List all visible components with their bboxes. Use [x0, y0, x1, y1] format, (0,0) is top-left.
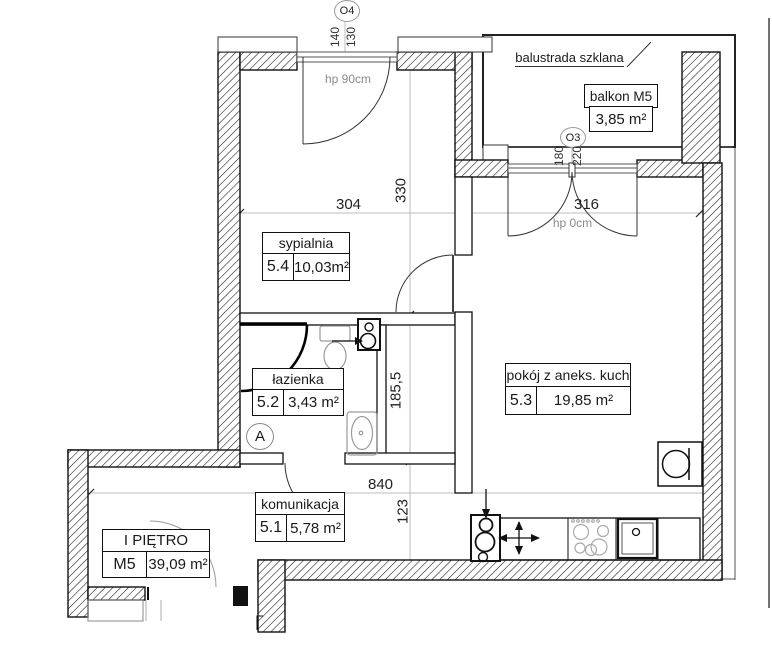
room-area: 10,03m² — [294, 254, 349, 280]
balcony-area-box: 3,85 m² — [589, 106, 653, 132]
dim-123: 123 — [396, 482, 411, 542]
room-number: 5.3 — [506, 387, 537, 414]
o3-sill-height: hp 0cm — [545, 216, 600, 229]
kitchen-sink — [618, 519, 657, 558]
washbasin — [347, 412, 377, 455]
room-label-sypialnia: sypialnia 5.4 10,03m² — [262, 232, 350, 281]
room-name: pokój z aneks. kuch — [506, 364, 630, 387]
o3-width-dim: 180 — [552, 136, 566, 176]
unit-number: M5 — [103, 552, 147, 577]
o4-width-dim: 140 — [328, 17, 342, 57]
kitchen-riser-unit — [471, 489, 500, 562]
room-area: 3,43 m² — [284, 390, 343, 415]
building-outline-lines — [722, 18, 769, 608]
room-number: 5.4 — [263, 254, 294, 280]
dim-330: 330 — [394, 161, 409, 221]
dim-304: 304 — [326, 196, 371, 212]
sheet-title-cropped: PODZIAŁ — [216, 649, 512, 658]
window-o4 — [297, 52, 397, 144]
floor-name: I PIĘTRO — [103, 530, 209, 552]
section-marker-a: A — [246, 423, 274, 450]
balcony-name-box: balkon M5 — [584, 84, 658, 108]
bedroom-door — [396, 255, 453, 312]
room-area: 19,85 m² — [537, 387, 630, 414]
room-label-pokoj: pokój z aneks. kuch 5.3 19,85 m² — [505, 363, 631, 415]
floor-plan: O4 140 130 hp 90cm balustrada szklana ba… — [0, 0, 772, 658]
stove — [572, 520, 609, 556]
dim-185-5: 185,5 — [389, 361, 404, 421]
room-number: 5.1 — [256, 515, 287, 541]
unit-area: 39,09 m² — [147, 552, 209, 577]
room-number: 5.2 — [253, 390, 284, 415]
balustrade-note: balustrada szklana — [512, 50, 627, 66]
interior-walls — [240, 177, 472, 493]
room-area: 5,78 m² — [287, 515, 344, 541]
o3-height-dim: 220 — [570, 136, 584, 176]
room-name: komunikacja — [256, 493, 344, 515]
floor-unit-label: I PIĘTRO M5 39,09 m² — [102, 529, 210, 578]
toilet — [320, 326, 350, 370]
dim-316: 316 — [564, 196, 609, 212]
room-name: łazienka — [253, 369, 343, 390]
room-label-lazienka: łazienka 5.2 3,43 m² — [252, 368, 344, 416]
o4-height-dim: 130 — [344, 17, 358, 57]
room-label-komunikacja: komunikacja 5.1 5,78 m² — [255, 492, 345, 542]
o4-sill-height: hp 90cm — [318, 72, 378, 86]
fridge — [658, 442, 702, 486]
vent-cross-arrows — [498, 521, 540, 555]
room-name: sypialnia — [263, 233, 349, 254]
